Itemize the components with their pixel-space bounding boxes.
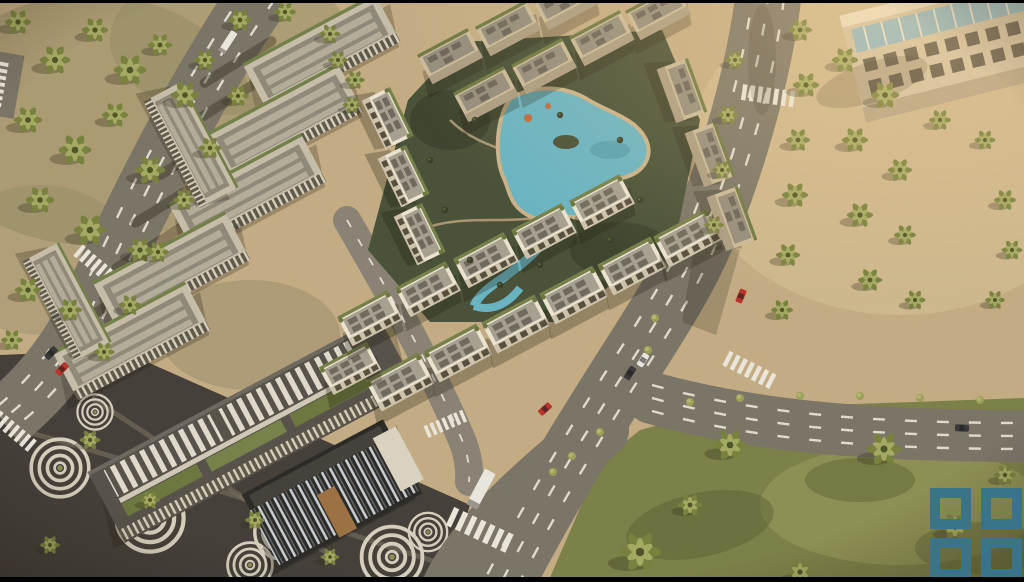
aerial-render-scene (0, 0, 1024, 582)
letterbox-bottom (0, 577, 1024, 582)
vignette (0, 0, 1024, 582)
light-overlays (0, 0, 1024, 582)
letterbox-top (0, 0, 1024, 3)
video-frame (0, 0, 1024, 582)
